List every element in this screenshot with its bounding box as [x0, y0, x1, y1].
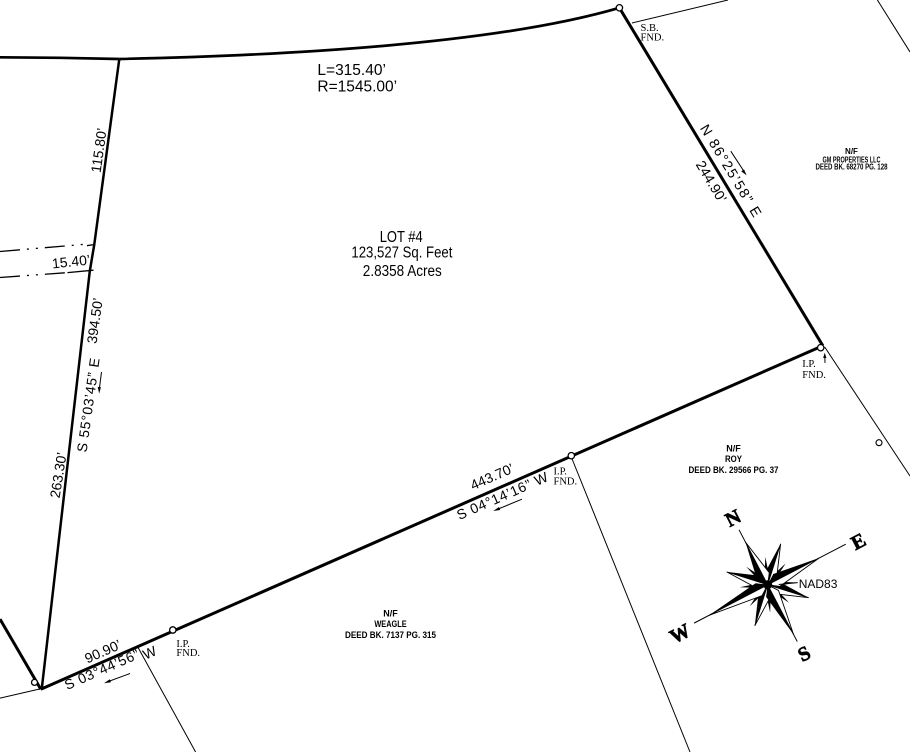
svg-text:E: E	[848, 529, 870, 555]
svg-text:FND.: FND.	[554, 476, 578, 487]
svg-text:2.8358 Acres: 2.8358 Acres	[363, 263, 442, 280]
svg-text:115.80’: 115.80’	[88, 127, 110, 174]
svg-text:DEED BK. 29566 PG. 37: DEED BK. 29566 PG. 37	[689, 465, 779, 475]
svg-text:ROY: ROY	[725, 454, 742, 464]
svg-text:R=1545.00’: R=1545.00’	[317, 79, 397, 96]
svg-text:N/F: N/F	[383, 609, 398, 619]
svg-text:15.40’: 15.40’	[51, 252, 91, 272]
svg-text:W: W	[666, 620, 694, 649]
svg-text:I.P.: I.P.	[802, 359, 815, 370]
svg-text:FND.: FND.	[176, 648, 200, 659]
svg-text:N: N	[722, 505, 745, 531]
svg-text:263.30’: 263.30’	[47, 451, 70, 499]
svg-text:N/F: N/F	[726, 443, 741, 453]
svg-text:S: S	[794, 642, 814, 667]
svg-text:DEED BK. 68270 PG. 128: DEED BK. 68270 PG. 128	[816, 163, 888, 172]
svg-text:FND.: FND.	[802, 370, 826, 381]
svg-text:WEAGLE: WEAGLE	[374, 619, 406, 629]
svg-text:123,527 Sq. Feet: 123,527 Sq. Feet	[351, 244, 453, 261]
svg-text:FND.: FND.	[641, 33, 665, 44]
svg-text:L=315.40’: L=315.40’	[317, 62, 386, 79]
svg-text:DEED BK. 7137 PG. 315: DEED BK. 7137 PG. 315	[345, 630, 436, 640]
svg-text:NAD83: NAD83	[799, 577, 838, 591]
